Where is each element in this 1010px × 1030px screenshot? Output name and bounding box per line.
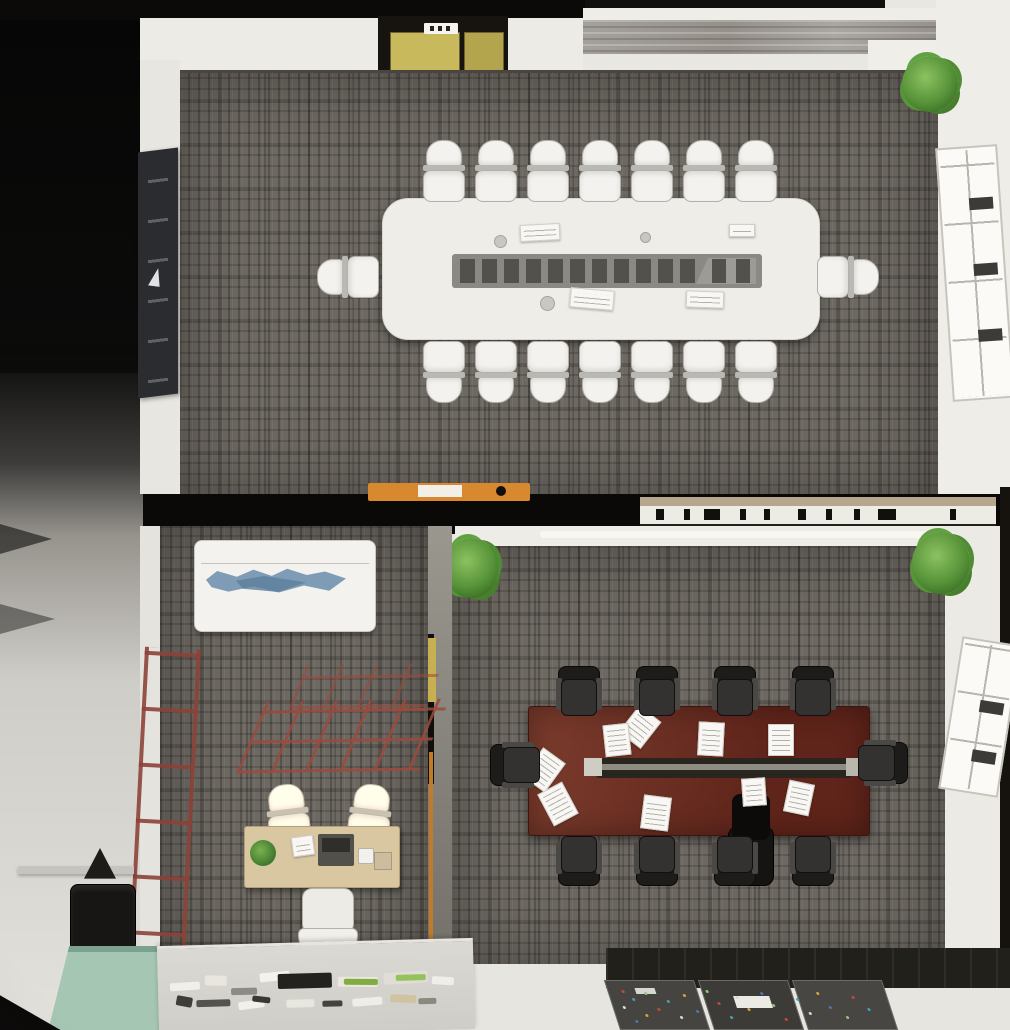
media-segment bbox=[614, 259, 629, 283]
notepad bbox=[569, 287, 615, 311]
counter-item bbox=[826, 509, 832, 520]
swatch-dot bbox=[682, 994, 686, 997]
stationery-item bbox=[286, 999, 314, 1008]
media-segment bbox=[636, 259, 651, 283]
conference-chair-black bbox=[634, 836, 680, 886]
counter-item bbox=[704, 509, 720, 520]
plank-floor-strip-upper-sliver bbox=[583, 8, 943, 20]
swatch-label bbox=[733, 996, 773, 1008]
cup bbox=[640, 232, 651, 243]
conference-chair-white bbox=[526, 341, 570, 403]
counter-item bbox=[878, 509, 896, 520]
stationery-item bbox=[278, 973, 332, 989]
conference-chair-black bbox=[712, 666, 758, 716]
media-segment bbox=[680, 259, 695, 283]
swatch-dot bbox=[621, 990, 625, 993]
conference-chair-white bbox=[682, 140, 726, 202]
paper-sheet bbox=[602, 723, 631, 758]
black-lounge-chair bbox=[70, 884, 136, 952]
cable-strip-highlight bbox=[600, 764, 848, 770]
sample-swatch-boards bbox=[604, 980, 920, 1030]
conference-chair-white bbox=[630, 140, 674, 202]
paper-sheet bbox=[640, 794, 672, 831]
window-blind-bar bbox=[973, 262, 998, 276]
window-blind-bar bbox=[969, 197, 994, 211]
conference-chair-white bbox=[474, 140, 518, 202]
conference-chair-white bbox=[734, 341, 778, 403]
media-segment bbox=[526, 259, 541, 283]
swatch-dot bbox=[730, 1016, 734, 1019]
left-exterior-wall bbox=[0, 0, 150, 1030]
swatch-dot bbox=[666, 1000, 670, 1003]
swatch-dot bbox=[808, 1012, 812, 1015]
swatch-dot bbox=[644, 992, 648, 995]
divider-counter bbox=[640, 506, 996, 525]
paper-sheet bbox=[741, 777, 767, 807]
media-segment bbox=[736, 259, 750, 283]
swatch-dot bbox=[735, 996, 739, 999]
swatch-dot bbox=[696, 1010, 700, 1013]
media-segment bbox=[570, 259, 585, 283]
swatch-panel bbox=[604, 980, 710, 1030]
swatch-dot bbox=[622, 1006, 626, 1009]
swatch-dot bbox=[717, 1002, 721, 1005]
stationery-item bbox=[390, 994, 416, 1003]
potted-plant bbox=[902, 56, 958, 112]
media-segment bbox=[548, 259, 563, 283]
notepad bbox=[686, 290, 725, 308]
top-wall-thin-band bbox=[585, 0, 885, 8]
wall-shelf-line bbox=[18, 866, 134, 874]
media-segment bbox=[592, 259, 607, 283]
media-segment bbox=[658, 259, 673, 283]
laptop-screen bbox=[322, 838, 350, 852]
swatch-dot bbox=[680, 1016, 684, 1019]
stationery-item bbox=[396, 974, 426, 981]
conference-chair-white bbox=[578, 341, 622, 403]
notepad bbox=[520, 223, 561, 242]
swatch-dot bbox=[846, 1016, 850, 1019]
stationery-item bbox=[196, 999, 230, 1007]
top-wall-white bbox=[140, 18, 585, 72]
cable-strip-end-cap bbox=[584, 758, 602, 776]
swatch-dot bbox=[816, 992, 820, 995]
wall-shelf-shadow bbox=[0, 345, 143, 373]
conference-chair-white bbox=[734, 140, 778, 202]
media-segment bbox=[460, 259, 475, 283]
counter-item bbox=[798, 509, 806, 520]
conference-chair-white bbox=[526, 140, 570, 202]
desk-phone bbox=[358, 848, 374, 864]
stationery-item bbox=[432, 976, 454, 985]
conference-chair-black bbox=[790, 666, 836, 716]
potted-plant bbox=[444, 538, 498, 598]
elevator-sign-text-marks bbox=[430, 26, 452, 31]
conference-chair-black bbox=[490, 742, 540, 788]
desk-paper bbox=[291, 835, 316, 858]
conference-chair-white bbox=[422, 341, 466, 403]
conference-chair-black bbox=[790, 836, 836, 886]
orange-credenza bbox=[368, 483, 530, 501]
elevator-sign bbox=[424, 23, 458, 34]
stationery-item bbox=[344, 979, 378, 985]
swatch-dot bbox=[796, 998, 800, 1001]
red-frame-shelf-lower bbox=[236, 698, 450, 773]
media-segment bbox=[482, 259, 497, 283]
swatch-dot bbox=[851, 996, 855, 999]
stationery-item bbox=[418, 998, 436, 1004]
counter-item bbox=[740, 509, 746, 520]
office-top-view-render: Top-down 3D render of a two-room office … bbox=[0, 0, 1010, 1030]
swatch-dot bbox=[635, 1020, 639, 1023]
swatch-dot bbox=[705, 990, 709, 993]
swatch-dot bbox=[645, 1014, 649, 1017]
wall-display-panel bbox=[138, 148, 178, 399]
conference-chair-white bbox=[422, 140, 466, 202]
conference-chair-white bbox=[578, 140, 622, 202]
stationery-item bbox=[205, 975, 227, 986]
media-segment bbox=[504, 259, 519, 283]
conference-chair-black bbox=[858, 740, 908, 786]
conference-chair-black bbox=[634, 666, 680, 716]
swatch-dot bbox=[784, 1018, 788, 1021]
cup bbox=[494, 235, 507, 248]
window-blind-bar bbox=[978, 328, 1003, 342]
stationery-item bbox=[170, 982, 200, 992]
conference-chair-black bbox=[712, 836, 758, 886]
paper-sheet bbox=[768, 724, 794, 756]
counter-item bbox=[656, 509, 664, 520]
swatch-dot bbox=[747, 1008, 751, 1011]
desk-tray bbox=[374, 852, 392, 870]
desk-plant bbox=[250, 840, 276, 866]
credenza-knob bbox=[496, 486, 506, 496]
stationery-item bbox=[231, 988, 257, 996]
conference-chair-white bbox=[682, 341, 726, 403]
swatch-dot bbox=[632, 998, 636, 1001]
cup bbox=[540, 296, 555, 311]
media-segment bbox=[712, 259, 726, 283]
sofa-seat-line bbox=[201, 563, 369, 564]
table-cable-strip bbox=[596, 758, 852, 778]
swatch-dot bbox=[760, 992, 764, 995]
counter-item bbox=[950, 509, 956, 520]
ceiling-light-glare bbox=[540, 531, 940, 538]
laptop bbox=[318, 834, 354, 866]
conference-chair-white bbox=[474, 341, 518, 403]
swatch-panel bbox=[792, 980, 898, 1030]
swatch-dot bbox=[867, 1008, 871, 1011]
counter-item bbox=[854, 509, 860, 520]
conference-chair-white bbox=[317, 255, 379, 299]
stationery-item bbox=[176, 995, 194, 1008]
conference-chair-black bbox=[556, 836, 602, 886]
stationery-counter bbox=[157, 938, 475, 1030]
stationery-item bbox=[352, 996, 383, 1006]
swatch-dot bbox=[772, 1004, 776, 1007]
stationery-item bbox=[322, 1000, 342, 1007]
credenza-label bbox=[418, 485, 462, 497]
conference-chair-black bbox=[556, 666, 602, 716]
potted-plant bbox=[912, 532, 970, 594]
paper-sheet bbox=[697, 721, 725, 756]
swatch-dot bbox=[657, 1008, 661, 1011]
conference-chair-white bbox=[630, 341, 674, 403]
conference-chair-white bbox=[817, 255, 879, 299]
notepad bbox=[729, 224, 755, 237]
swatch-dot bbox=[828, 1006, 832, 1009]
counter-item bbox=[764, 509, 770, 520]
counter-item bbox=[684, 509, 690, 520]
